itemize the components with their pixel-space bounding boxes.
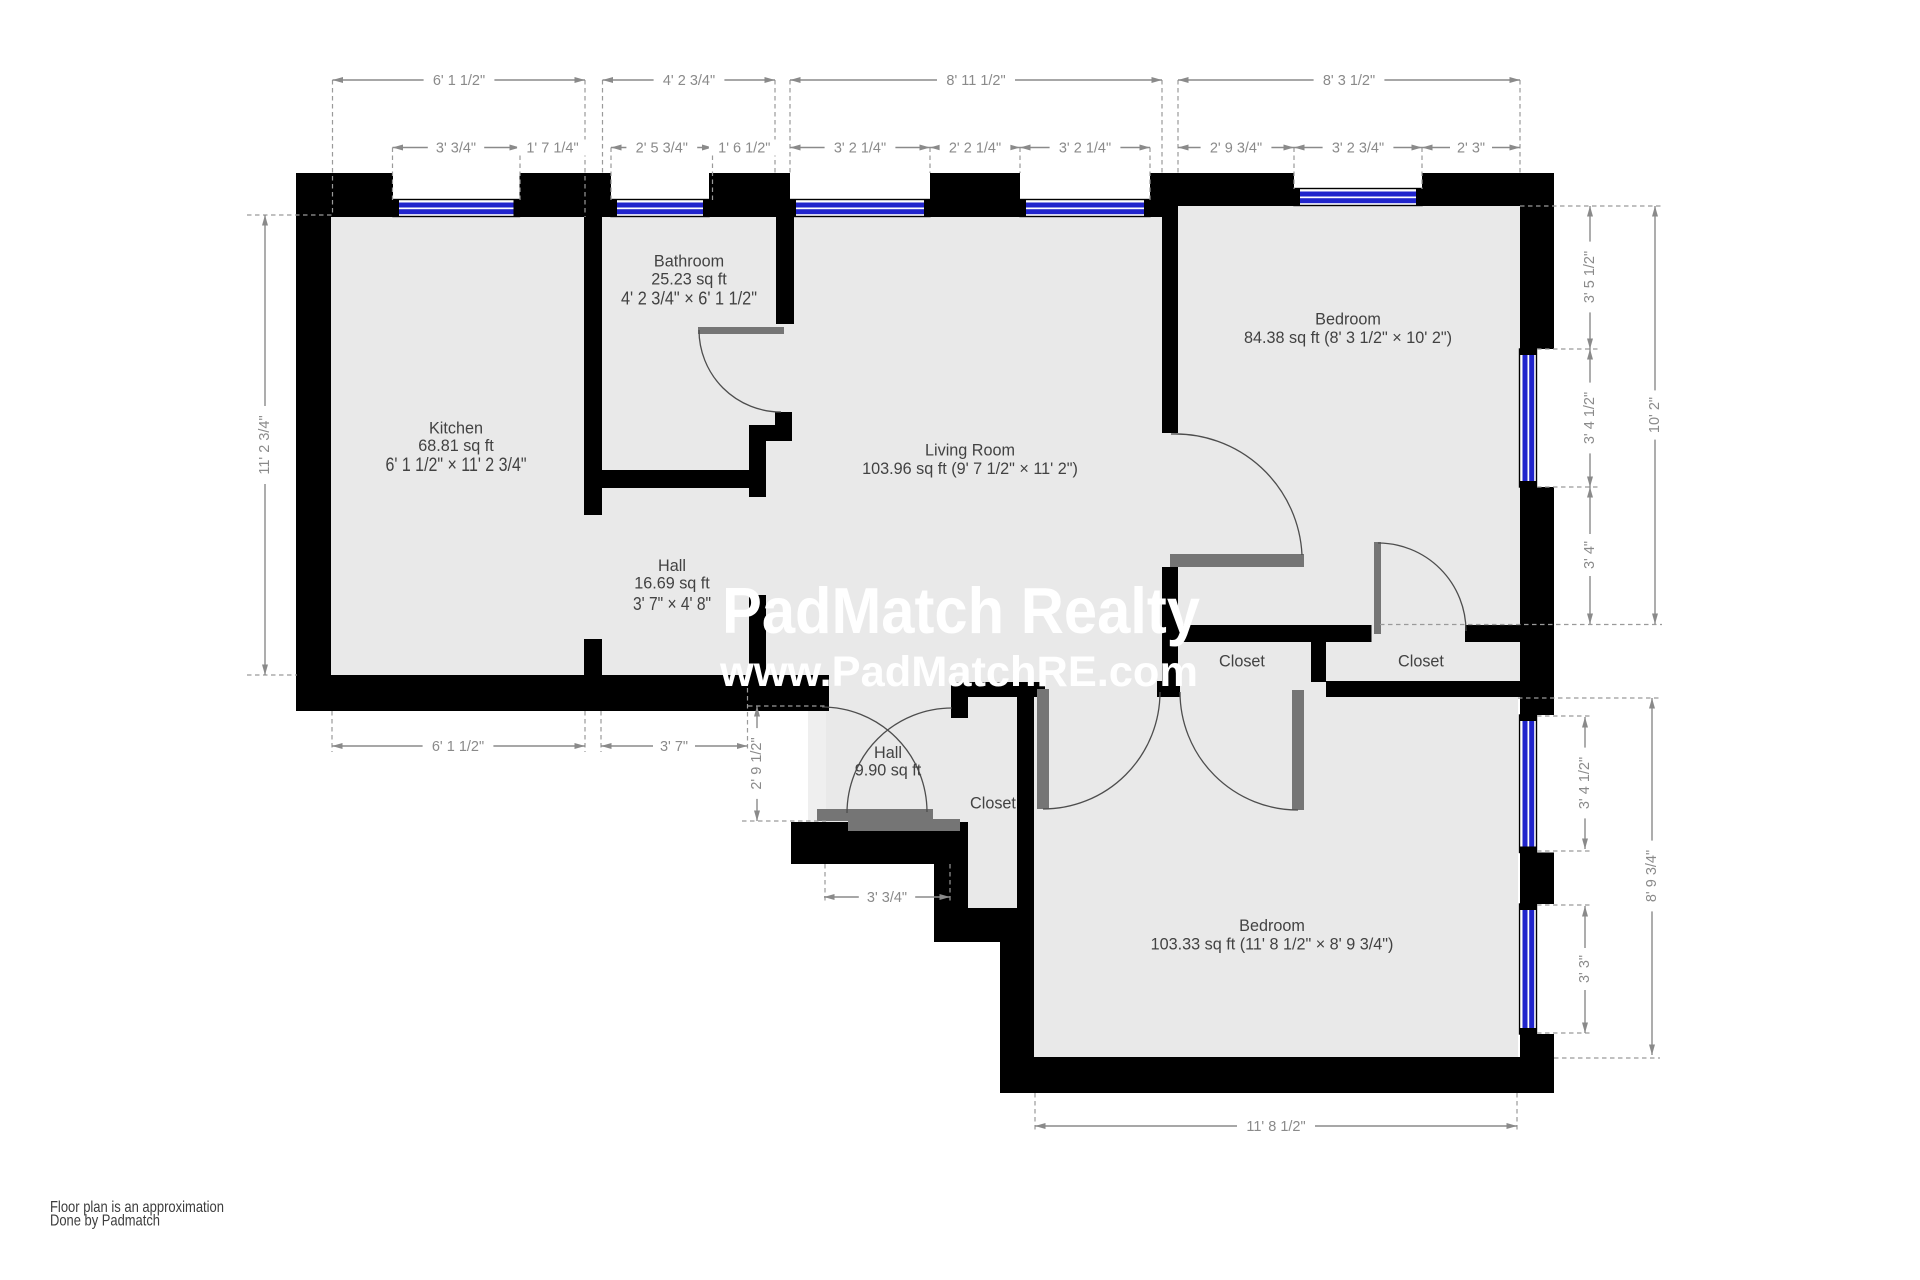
svg-text:3' 4 1/2": 3' 4 1/2" (1582, 392, 1598, 444)
svg-text:11' 2 3/4": 11' 2 3/4" (257, 415, 273, 474)
svg-text:103.33 sq ft (11' 8 1/2" × 8': 103.33 sq ft (11' 8 1/2" × 8' 9 3/4") (1151, 936, 1394, 954)
svg-text:Bedroom: Bedroom (1315, 311, 1381, 329)
svg-text:6' 1 1/2": 6' 1 1/2" (433, 73, 485, 89)
svg-text:Closet: Closet (1398, 653, 1444, 671)
svg-text:www.PadMatchRE.com: www.PadMatchRE.com (719, 648, 1198, 696)
svg-text:Done by Padmatch: Done by Padmatch (50, 1213, 160, 1230)
svg-text:103.96 sq ft (9' 7 1/2" × 11': 103.96 sq ft (9' 7 1/2" × 11' 2") (862, 460, 1078, 478)
svg-text:10' 2": 10' 2" (1647, 397, 1663, 433)
svg-text:11' 8 1/2": 11' 8 1/2" (1246, 1119, 1305, 1135)
svg-text:1' 7 1/4": 1' 7 1/4" (526, 141, 578, 157)
svg-text:3' 3/4": 3' 3/4" (867, 890, 907, 906)
svg-text:1' 6 1/2": 1' 6 1/2" (718, 141, 770, 157)
svg-text:8' 3 1/2": 8' 3 1/2" (1323, 73, 1375, 89)
svg-text:Bathroom: Bathroom (654, 253, 724, 271)
svg-text:68.81 sq ft: 68.81 sq ft (418, 437, 494, 455)
svg-text:3' 3/4": 3' 3/4" (436, 141, 476, 157)
svg-text:8' 9 3/4": 8' 9 3/4" (1644, 850, 1660, 902)
svg-text:6' 1 1/2" × 11' 2 3/4": 6' 1 1/2" × 11' 2 3/4" (386, 454, 527, 476)
svg-text:25.23 sq ft: 25.23 sq ft (651, 270, 727, 288)
svg-text:4' 2 3/4": 4' 2 3/4" (663, 73, 715, 89)
svg-text:Hall: Hall (874, 744, 902, 762)
svg-text:Closet: Closet (970, 795, 1016, 813)
svg-text:16.69 sq ft: 16.69 sq ft (634, 575, 710, 593)
svg-text:3' 7": 3' 7" (660, 739, 688, 755)
svg-text:2' 9 1/2": 2' 9 1/2" (749, 737, 765, 789)
svg-text:Hall: Hall (658, 557, 686, 575)
svg-text:2' 5 3/4": 2' 5 3/4" (636, 141, 688, 157)
svg-text:3' 7" × 4' 8": 3' 7" × 4' 8" (633, 593, 711, 614)
svg-text:Bedroom: Bedroom (1239, 917, 1305, 935)
svg-text:4' 2 3/4" × 6' 1 1/2": 4' 2 3/4" × 6' 1 1/2" (621, 288, 757, 309)
svg-text:9.90 sq ft: 9.90 sq ft (855, 762, 922, 780)
svg-text:2' 9 3/4": 2' 9 3/4" (1210, 141, 1262, 157)
svg-text:84.38 sq ft (8' 3 1/2" × 10' 2: 84.38 sq ft (8' 3 1/2" × 10' 2") (1244, 329, 1452, 347)
svg-text:3' 3": 3' 3" (1577, 955, 1593, 983)
svg-text:3' 4 1/2": 3' 4 1/2" (1577, 757, 1593, 809)
svg-text:3' 2 3/4": 3' 2 3/4" (1332, 141, 1384, 157)
svg-text:2' 3": 2' 3" (1457, 141, 1485, 157)
svg-text:Kitchen: Kitchen (429, 420, 483, 438)
svg-text:3' 5 1/2": 3' 5 1/2" (1582, 251, 1598, 303)
svg-text:8' 11 1/2": 8' 11 1/2" (946, 73, 1005, 89)
svg-text:PadMatch Realty: PadMatch Realty (722, 574, 1200, 647)
svg-text:2' 2 1/4": 2' 2 1/4" (949, 141, 1001, 157)
svg-text:3' 4": 3' 4" (1582, 541, 1598, 569)
svg-text:Closet: Closet (1219, 653, 1265, 671)
svg-text:3' 2 1/4": 3' 2 1/4" (834, 141, 886, 157)
svg-text:Living Room: Living Room (925, 442, 1015, 460)
svg-text:3' 2 1/4": 3' 2 1/4" (1059, 141, 1111, 157)
svg-text:6' 1 1/2": 6' 1 1/2" (432, 739, 484, 755)
